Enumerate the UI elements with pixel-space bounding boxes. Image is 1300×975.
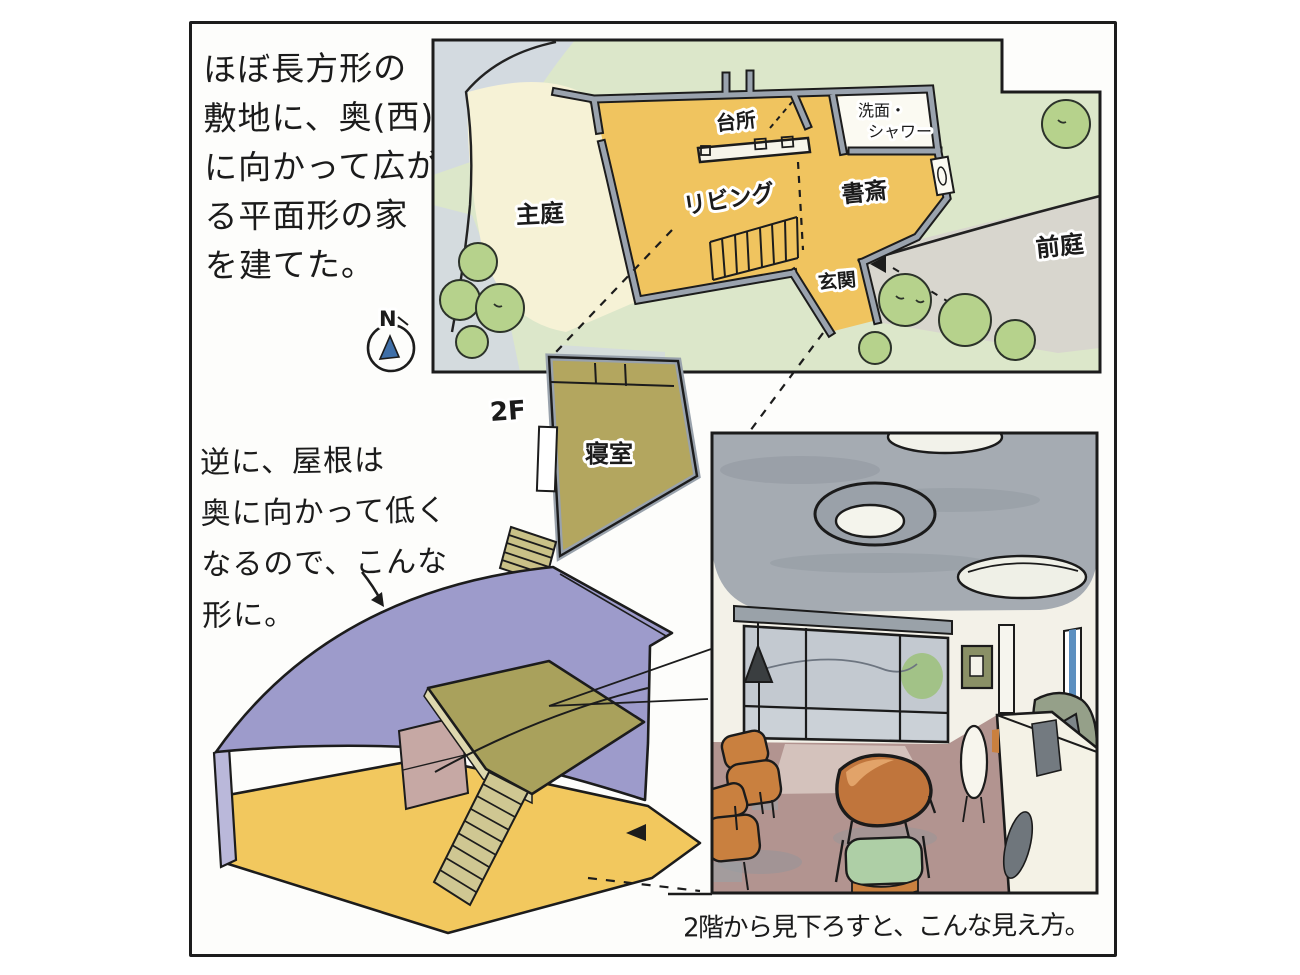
tree-icon [440, 280, 480, 320]
second-floor-plan: 寝室 2F [489, 357, 697, 583]
ceiling-light [958, 556, 1086, 598]
tree-icon [456, 326, 488, 358]
illustration-page: ほぼ長方形の 敷地に、奥(西) に向かって広が る平面形の家 を建てた。 逆に、… [0, 0, 1300, 975]
compass: N [368, 307, 414, 371]
drawing-canvas: 主庭 前庭 台所 洗面・ シャワー リビング 書斎 玄関 寝室 2F [0, 0, 1300, 975]
wall-art-center [970, 656, 983, 676]
counter-stool-back [1032, 720, 1061, 776]
ceiling-light [888, 421, 1002, 453]
label-entrance: 玄関 [817, 268, 857, 294]
iso-west-wall [214, 747, 236, 867]
isometric-house [214, 567, 714, 933]
label-main-garden: 主庭 [515, 199, 564, 229]
tree-icon [879, 274, 931, 326]
tree-icon [459, 243, 497, 281]
label-washroom: 洗面・ [858, 101, 906, 120]
label-kitchen: 台所 [715, 107, 757, 135]
compass-north-label: N [379, 307, 397, 331]
chair-accent [992, 729, 999, 753]
compass-tick [398, 317, 408, 325]
label-washroom: シャワー [868, 122, 932, 141]
tree-icon [859, 332, 891, 364]
ceiling-ring-light-center [836, 505, 904, 537]
ceiling-shading [720, 456, 880, 484]
hall-doorway [999, 625, 1014, 713]
label-front-garden: 前庭 [1034, 230, 1085, 263]
tree-icon [476, 284, 524, 332]
tree-icon [939, 294, 991, 346]
label-study: 書斎 [840, 177, 889, 209]
label-bedroom: 寝室 [585, 440, 633, 468]
tree-icon [995, 320, 1035, 360]
site-plan-panel: 主庭 前庭 台所 洗面・ シャワー リビング 書斎 玄関 [433, 40, 1100, 372]
tree-icon [1042, 100, 1090, 148]
ceiling-shading [770, 553, 990, 573]
tree-through-glass [901, 653, 943, 699]
label-2f: 2F [489, 396, 527, 428]
balcony-window [537, 427, 557, 492]
interior-view-panel [668, 421, 1097, 897]
